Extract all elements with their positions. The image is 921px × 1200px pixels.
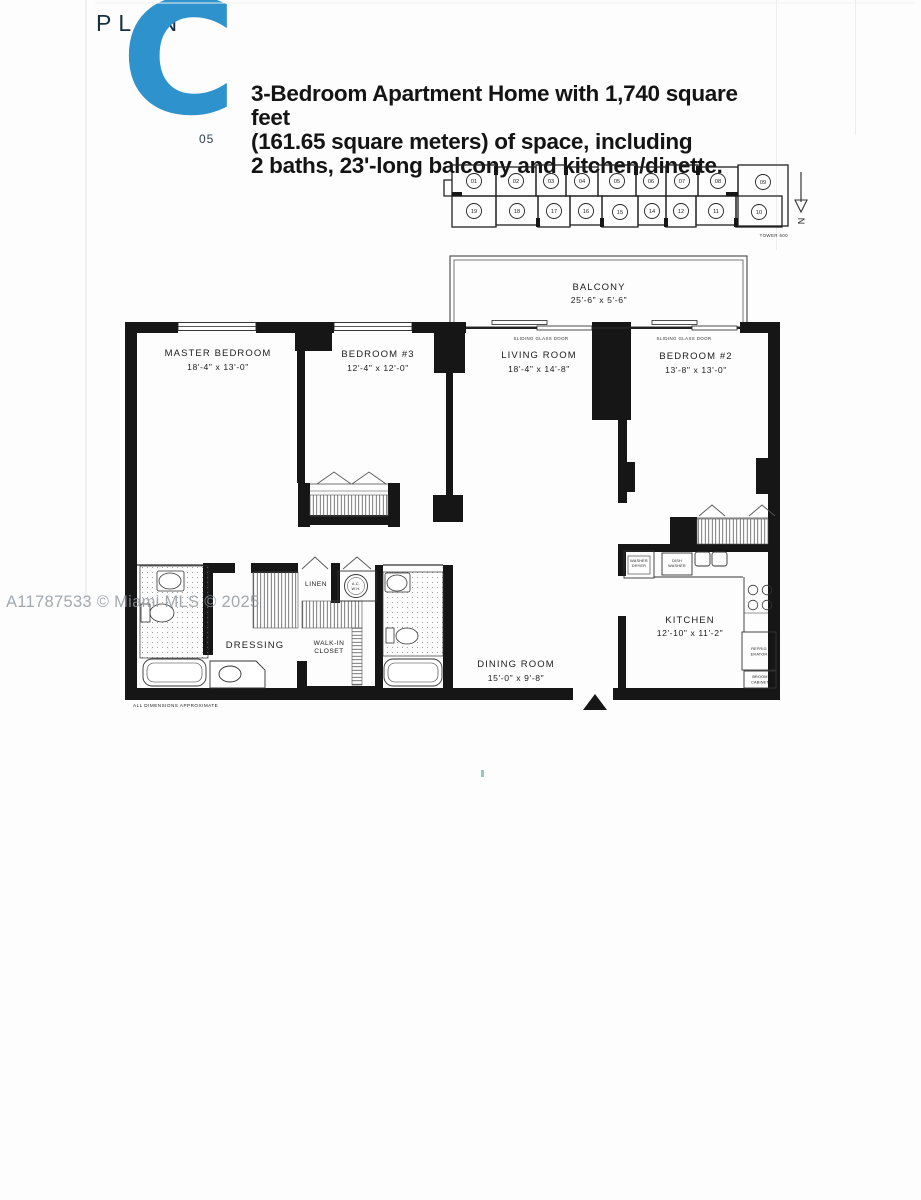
bedroom3-label: BEDROOM #3 <box>341 349 414 360</box>
walls <box>125 322 780 700</box>
broom-cabinet-label-2: CABINET <box>751 681 769 685</box>
unit-01: 01 <box>471 179 477 185</box>
floor-plan-page: PLAN C 05 3-Bedroom Apartment Home with … <box>0 0 921 1200</box>
building-key-plan <box>444 165 788 227</box>
bedroom2-label: BEDROOM #2 <box>659 351 732 362</box>
living-room-dims: 18'-4" x 14'-8" <box>508 364 570 374</box>
unit-09: 09 <box>760 180 766 186</box>
unit-05: 05 <box>614 179 620 185</box>
bedroom3-dims: 12'-4" x 12'-0" <box>347 363 409 373</box>
unit-04: 04 <box>579 179 585 185</box>
master-bedroom-dims: 18'-4" x 13'-0" <box>187 362 249 372</box>
dressing-vanity <box>210 661 265 688</box>
linen-label: LINEN <box>305 581 327 588</box>
unit-15: 15 <box>617 210 623 216</box>
dishwasher-label-1: DISH <box>672 559 682 563</box>
broom-cabinet-label-1: BROOM <box>752 675 767 679</box>
refrigerator-label-2: ERATOR <box>751 653 768 657</box>
walk-in-closet-label-2: CLOSET <box>314 648 343 655</box>
unit-10: 10 <box>756 210 762 216</box>
bedroom2-dims: 13'-8" x 13'-0" <box>665 365 727 375</box>
unit-14: 14 <box>649 209 655 215</box>
balcony-dims: 25'-6" x 5'-6" <box>571 295 627 305</box>
entry-arrow-icon <box>583 694 607 710</box>
unit-17: 17 <box>551 209 557 215</box>
sliding-door-label-1: SLIDING GLASS DOOR <box>513 336 568 341</box>
floor-plan-drawing: 01 02 03 04 05 06 07 08 09 19 18 17 16 1… <box>0 0 921 1200</box>
dining-room-label: DINING ROOM <box>477 659 555 670</box>
washer-label-1: WASHER <box>630 559 648 563</box>
unit-12: 12 <box>678 209 684 215</box>
ac-label: A.C. <box>352 582 360 586</box>
unit-18: 18 <box>514 209 520 215</box>
dressing-label: DRESSING <box>226 640 284 651</box>
sliding-door-label-2: SLIDING GLASS DOOR <box>656 336 711 341</box>
mls-watermark: A11787533 © Miami MLS © 2025 <box>6 593 259 611</box>
walk-in-closet-label-1: WALK-IN <box>314 640 345 647</box>
balcony-label: BALCONY <box>572 282 625 293</box>
unit-11: 11 <box>713 209 719 215</box>
unit-16: 16 <box>583 209 589 215</box>
unit-02: 02 <box>513 179 519 185</box>
unit-19: 19 <box>471 209 477 215</box>
dimensions-footnote: ALL DIMENSIONS APPROXIMATE <box>133 703 218 708</box>
north-arrow-icon: N <box>795 172 807 224</box>
washer-label-2: DRYER <box>632 564 646 568</box>
unit-03: 03 <box>548 179 554 185</box>
refrigerator-label-1: REFRIG <box>751 647 767 651</box>
dishwasher-label-2: WASHER <box>668 564 686 568</box>
master-bedroom-label: MASTER BEDROOM <box>165 348 272 359</box>
ac-water-heater-closet <box>338 571 376 601</box>
living-room-label: LIVING ROOM <box>501 350 576 361</box>
unit-06: 06 <box>648 179 654 185</box>
wh-label: W.H. <box>351 587 360 591</box>
unit-07: 07 <box>679 179 685 185</box>
svg-text:N: N <box>796 218 806 225</box>
unit-08: 08 <box>715 179 721 185</box>
kitchen-dims: 12'-10" x 11'-2" <box>657 628 724 638</box>
master-bathroom <box>137 565 208 686</box>
dining-room-dims: 15'-0" x 9'-8" <box>488 673 544 683</box>
second-bathroom <box>383 565 443 686</box>
tower-label: TOWER 600 <box>760 233 789 238</box>
kitchen-label: KITCHEN <box>665 615 714 626</box>
